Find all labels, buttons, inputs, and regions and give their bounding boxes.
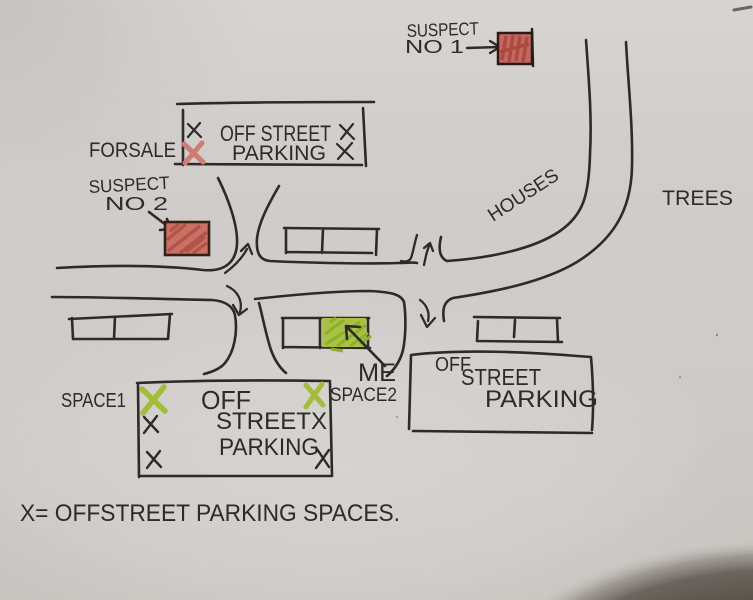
svg-text:NO 2: NO 2: [105, 194, 168, 214]
svg-text:STREETX: STREETX: [216, 408, 327, 435]
svg-text:TREES: TREES: [662, 187, 733, 210]
svg-text:X= OFFSTREET PARKING SPACES.: X= OFFSTREET PARKING SPACES.: [20, 500, 400, 527]
svg-text:PARKING: PARKING: [219, 434, 319, 461]
svg-text:PARKING: PARKING: [485, 386, 598, 413]
svg-text:NO 1: NO 1: [405, 37, 464, 57]
svg-text:SPACE1: SPACE1: [61, 390, 126, 412]
svg-text:ME: ME: [358, 359, 396, 387]
svg-text:PARKING: PARKING: [232, 142, 326, 165]
svg-text:FORSALE: FORSALE: [89, 139, 176, 162]
svg-text:SPACE2: SPACE2: [330, 385, 397, 406]
